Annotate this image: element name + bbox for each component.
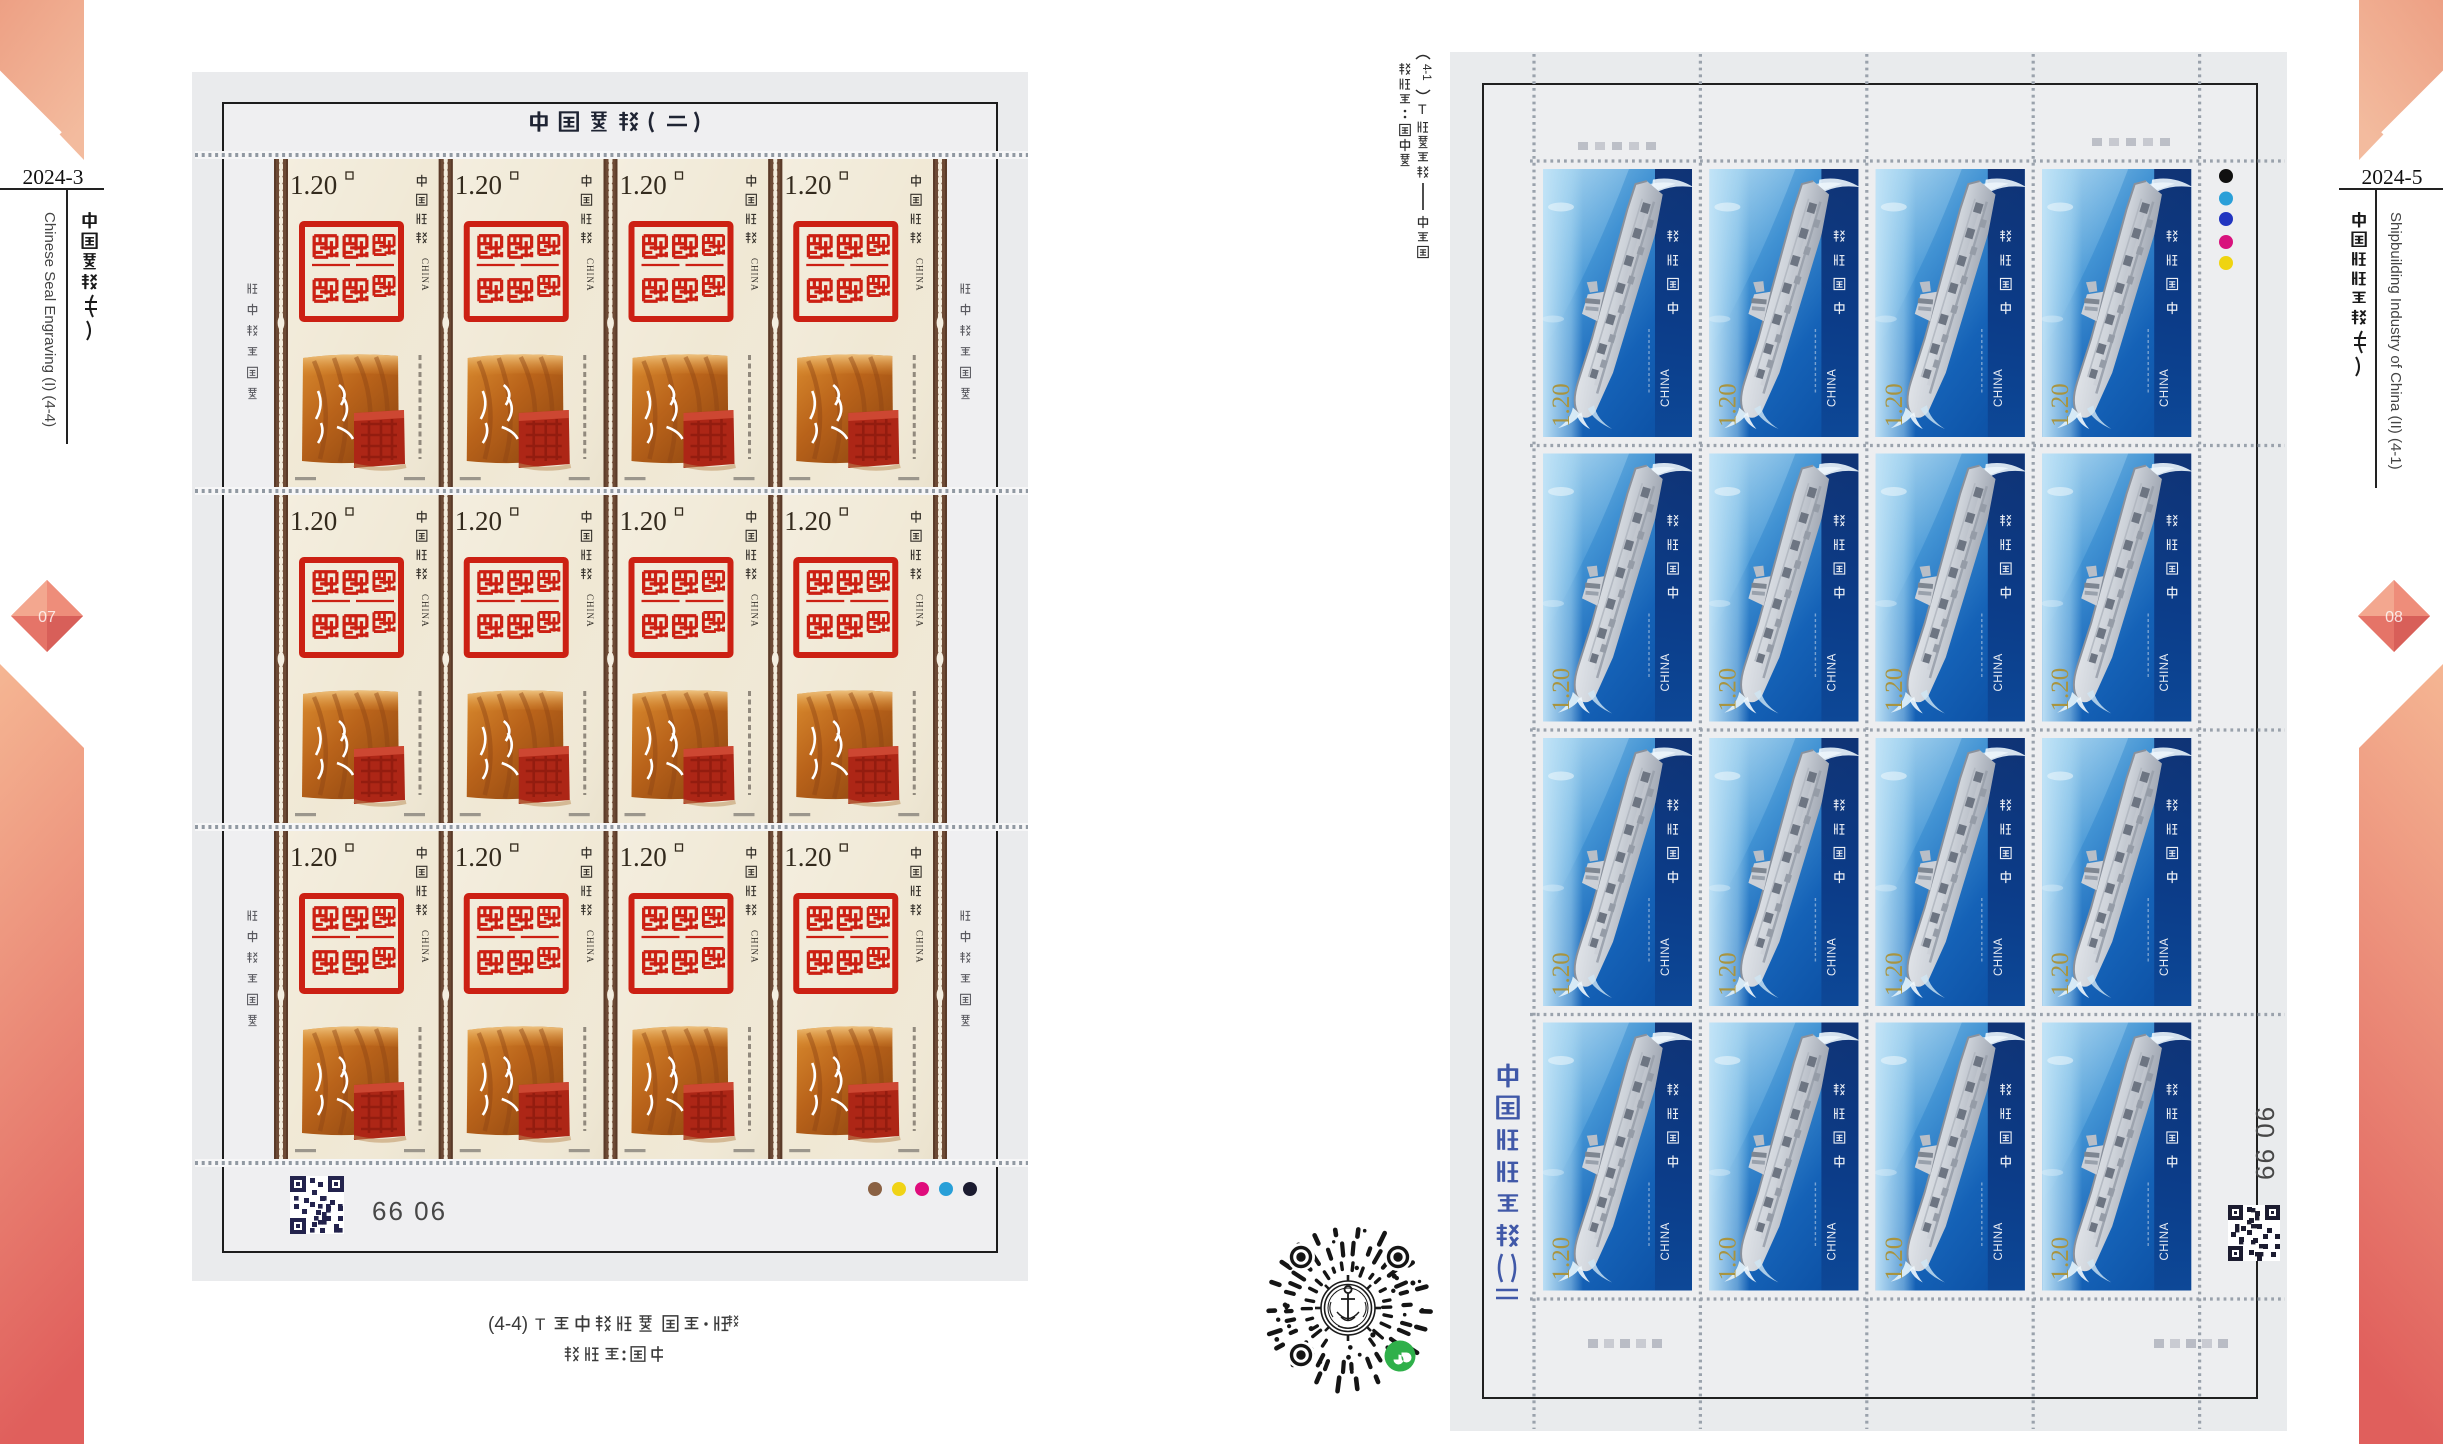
- svg-text:08: 08: [2385, 609, 2403, 626]
- svg-text:T: T: [1418, 101, 1427, 117]
- svg-text:(4-4): (4-4): [488, 1314, 528, 1335]
- svg-text:T: T: [535, 1315, 545, 1334]
- svg-text:66 06: 66 06: [2250, 1105, 2280, 1180]
- svg-text:66 06: 66 06: [372, 1196, 447, 1226]
- svg-text:4-1: 4-1: [1420, 64, 1432, 81]
- svg-text:07: 07: [38, 609, 56, 626]
